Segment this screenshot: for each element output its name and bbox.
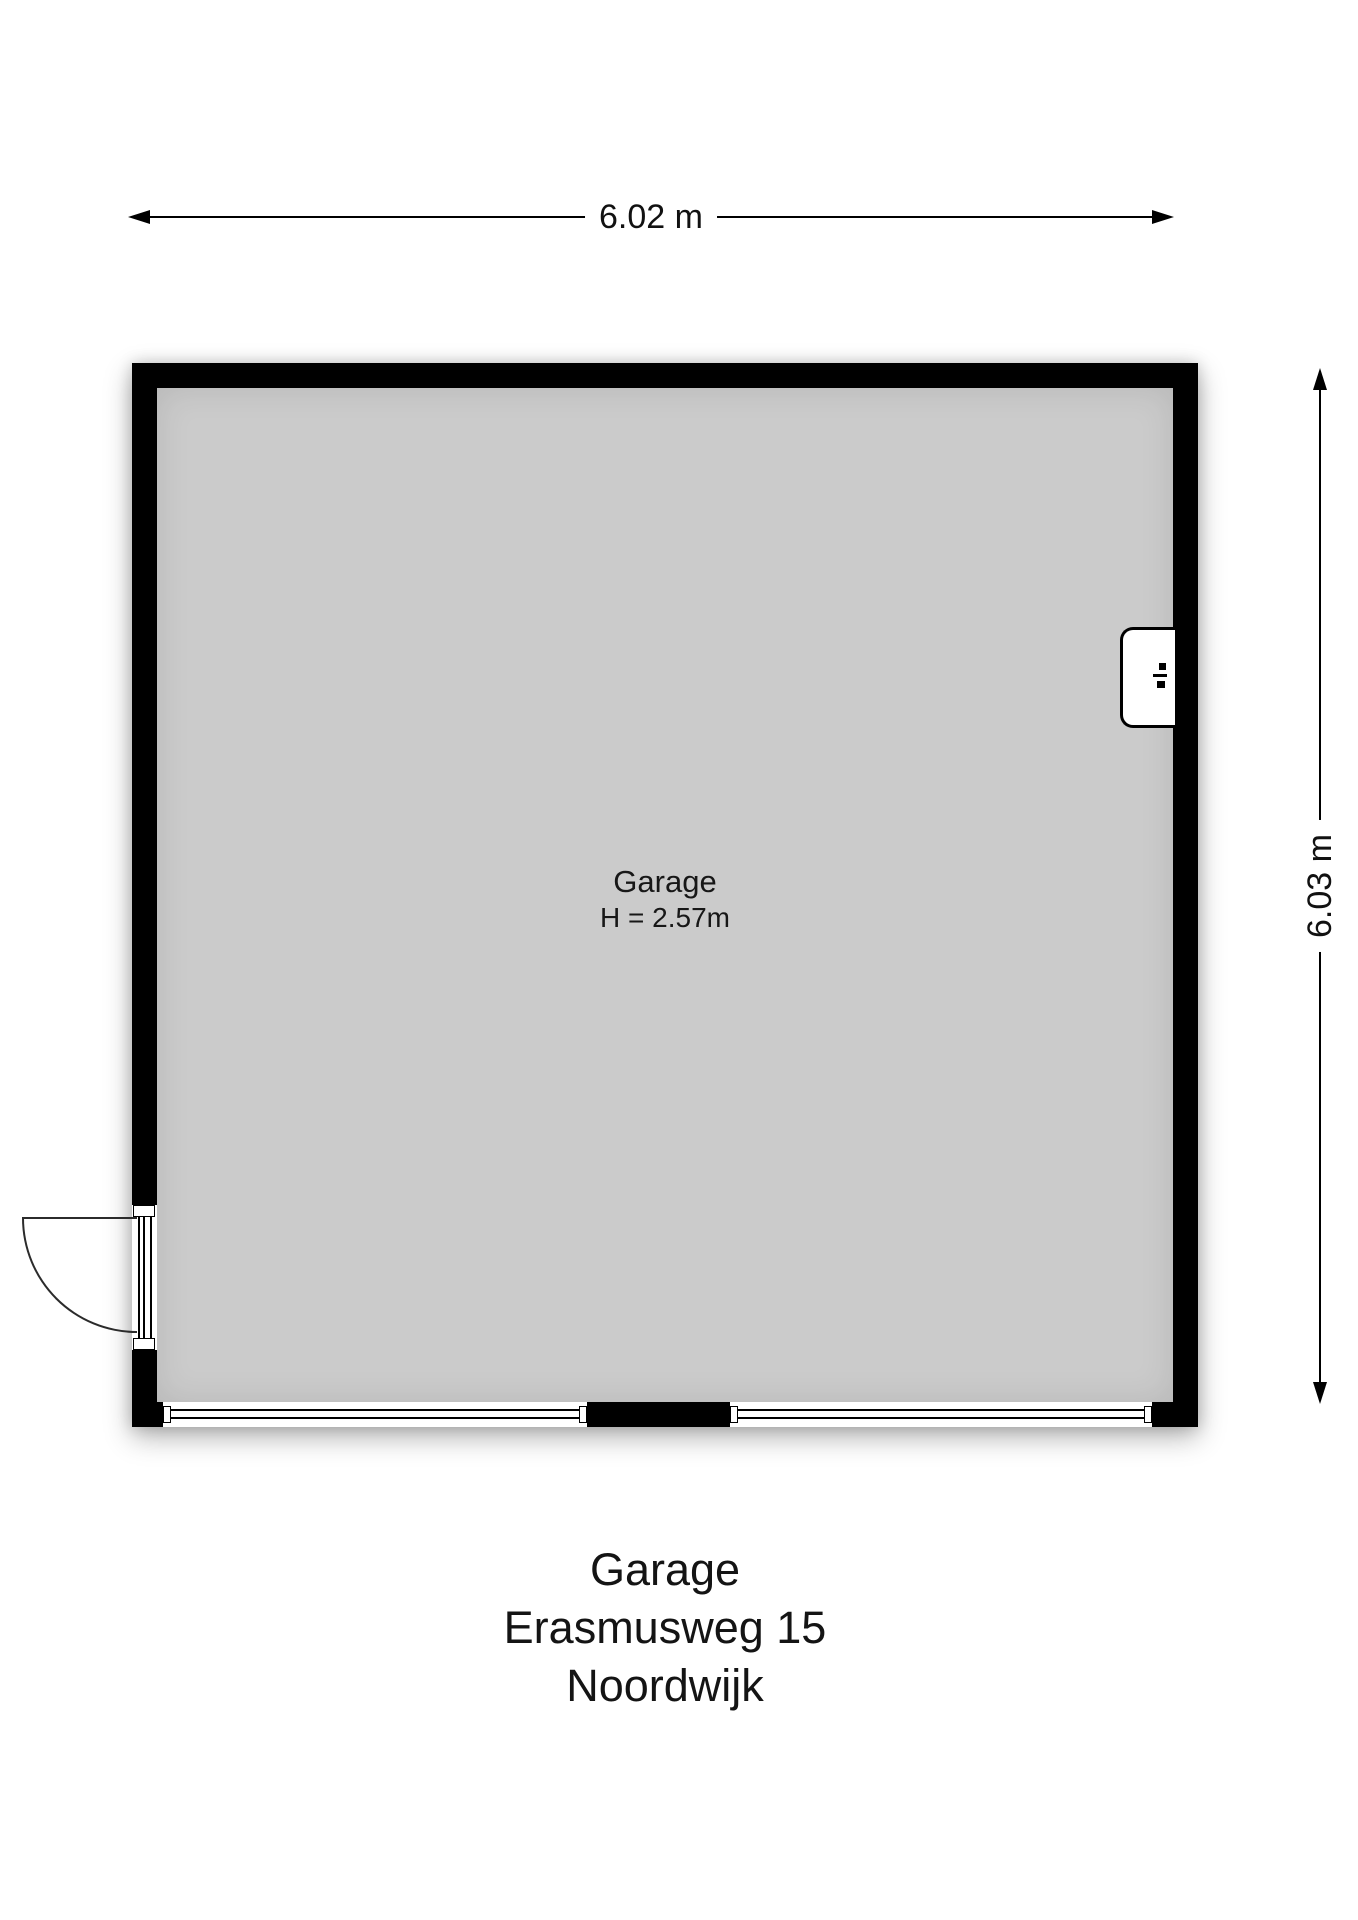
garage-door-end-cap [579, 1406, 587, 1423]
title-block: Garage Erasmusweg 15 Noordwijk [0, 1541, 1330, 1715]
arrow-right-icon [1152, 210, 1174, 224]
door-jamb [133, 1205, 155, 1217]
ventilation-unit-icon [1157, 681, 1165, 688]
garage-door-end-cap [163, 1406, 171, 1423]
ventilation-unit-icon [1153, 674, 1167, 677]
arrow-left-icon [128, 210, 150, 224]
room-name: Garage [613, 866, 716, 897]
dimension-width: 6.02 m [128, 210, 1174, 224]
arrow-down-icon [1313, 1382, 1327, 1404]
wall-unit [1120, 627, 1175, 728]
title-address: Erasmusweg 15 [504, 1599, 827, 1657]
door-jamb [133, 1338, 155, 1350]
dimension-height-label: 6.03 m [1301, 820, 1339, 952]
door-swing-arc [22, 1218, 137, 1333]
room-ceiling-height: H = 2.57m [600, 904, 730, 932]
arrow-up-icon [1313, 368, 1327, 390]
door-leaf-line [143, 1217, 145, 1338]
entry-door-leaf [138, 1217, 152, 1338]
garage-door-panel [171, 1409, 579, 1419]
garage-door-opening-left [163, 1402, 587, 1427]
title-room: Garage [590, 1541, 740, 1599]
dimension-width-label: 6.02 m [585, 198, 717, 236]
garage-door-opening-right [730, 1402, 1152, 1427]
garage-door-end-cap [730, 1406, 738, 1423]
ventilation-unit-icon [1159, 663, 1166, 670]
dimension-height: 6.03 m [1313, 368, 1327, 1404]
garage-walls: Garage H = 2.57m [132, 363, 1198, 1427]
garage-floor: Garage H = 2.57m [157, 388, 1173, 1402]
garage-door-panel [738, 1409, 1144, 1419]
title-city: Noordwijk [566, 1657, 764, 1715]
floorplan-page: 6.02 m 6.03 m Garage H = 2.57m [0, 0, 1358, 1920]
garage-door-end-cap [1144, 1406, 1152, 1423]
room-label: Garage H = 2.57m [157, 866, 1173, 932]
